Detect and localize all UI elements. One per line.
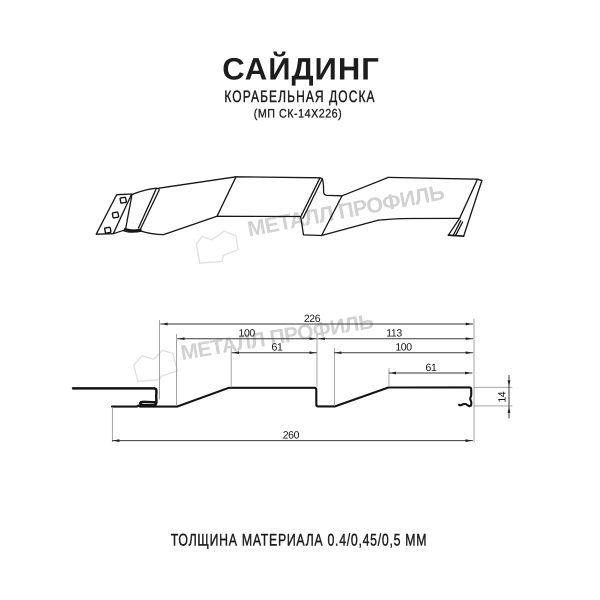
svg-text:ТОЛЩИНА МАТЕРИАЛА 0.4/0,45/0,5: ТОЛЩИНА МАТЕРИАЛА 0.4/0,45/0,5 ММ [171,531,427,550]
svg-text:260: 260 [283,430,300,442]
svg-text:14: 14 [496,391,508,402]
svg-text:КОРАБЕЛЬНАЯ ДОСКА: КОРАБЕЛЬНАЯ ДОСКА [224,88,375,106]
svg-text:(МП СК-14Х226): (МП СК-14Х226) [254,106,342,120]
svg-text:МЕТАЛЛ ПРОФИЛЬ: МЕТАЛЛ ПРОФИЛЬ [179,310,375,365]
svg-text:226: 226 [304,313,321,325]
svg-text:100: 100 [395,342,412,354]
svg-text:113: 113 [386,328,402,340]
svg-text:САЙДИНГ: САЙДИНГ [222,51,380,87]
svg-text:61: 61 [272,342,283,354]
svg-text:100: 100 [239,328,256,340]
svg-text:61: 61 [426,362,437,374]
svg-text:МЕТАЛЛ ПРОФИЛЬ: МЕТАЛЛ ПРОФИЛЬ [245,180,446,241]
